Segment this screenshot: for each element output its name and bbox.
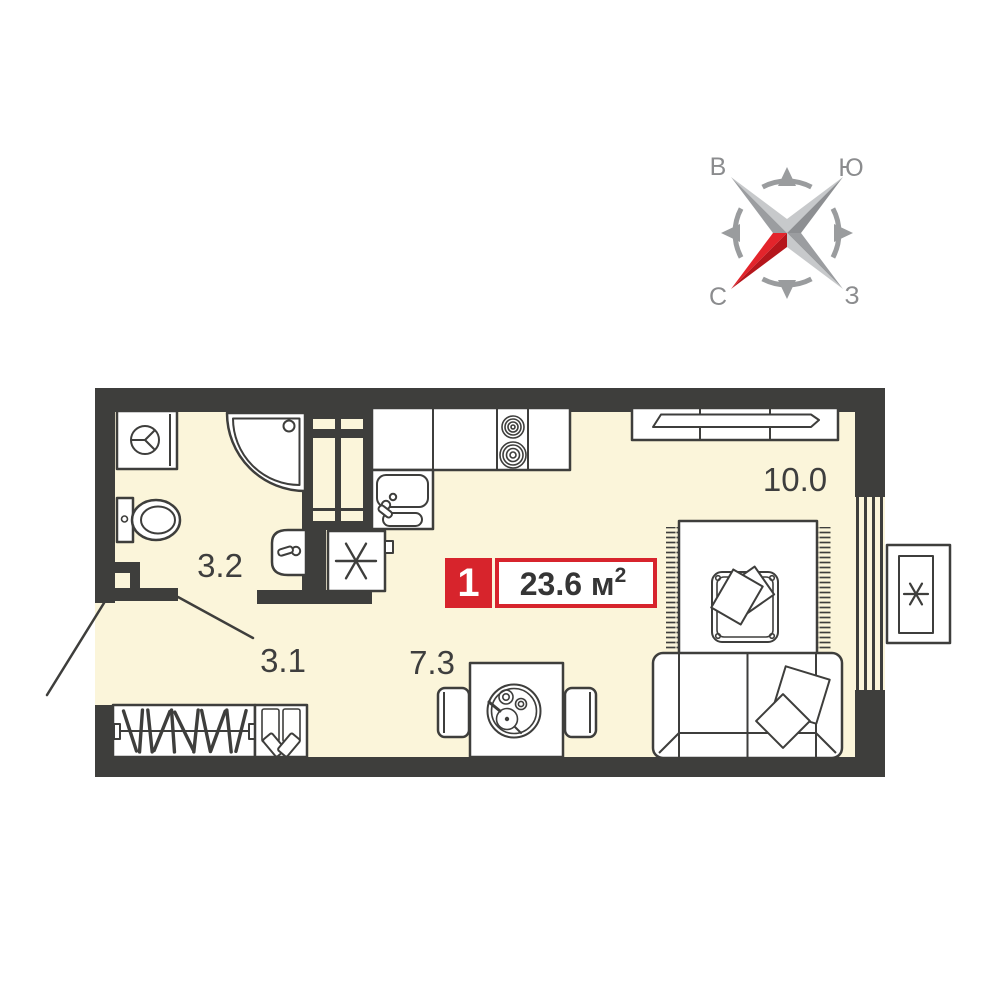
shoe-cabinet <box>255 705 307 757</box>
floorplan-page: В Ю С З <box>0 0 1000 1000</box>
floorplan-svg: В Ю С З <box>0 0 1000 1000</box>
toilet <box>117 498 180 542</box>
dining-table <box>470 663 563 757</box>
chair-right <box>565 688 596 737</box>
hallway-wardrobe <box>113 705 255 757</box>
tv-stand <box>632 408 838 440</box>
unit-badge: 1 23.6 м2 <box>445 558 655 608</box>
ac-unit <box>887 545 950 643</box>
kitchen-area-label: 7.3 <box>409 644 455 681</box>
fridge <box>328 531 393 591</box>
kitchen-counter <box>372 408 570 470</box>
bed <box>666 521 831 655</box>
living-area-label: 10.0 <box>763 461 827 498</box>
bathroom-area-label: 3.2 <box>197 547 243 584</box>
total-area: 23.6 м2 <box>520 564 627 602</box>
washbasin <box>272 530 306 575</box>
shower-drain <box>284 421 295 432</box>
floor-plan: 3.2 3.1 7.3 10.0 1 23.6 м2 <box>47 388 950 777</box>
room-count: 1 <box>457 561 479 605</box>
compass-rose: В Ю С З <box>709 153 864 311</box>
compass-letter-s: С <box>709 283 727 311</box>
sofa <box>653 653 842 758</box>
tv <box>653 415 819 428</box>
hallway-area-label: 3.1 <box>260 642 306 679</box>
compass-star <box>731 177 843 289</box>
washing-machine <box>117 411 177 469</box>
chair-left <box>438 688 469 737</box>
compass-letter-z: З <box>844 282 859 310</box>
fridge-handle <box>385 541 393 553</box>
compass-letter-yu: Ю <box>838 154 863 182</box>
kitchen-sink <box>372 470 433 529</box>
compass-letter-v: В <box>710 153 727 181</box>
